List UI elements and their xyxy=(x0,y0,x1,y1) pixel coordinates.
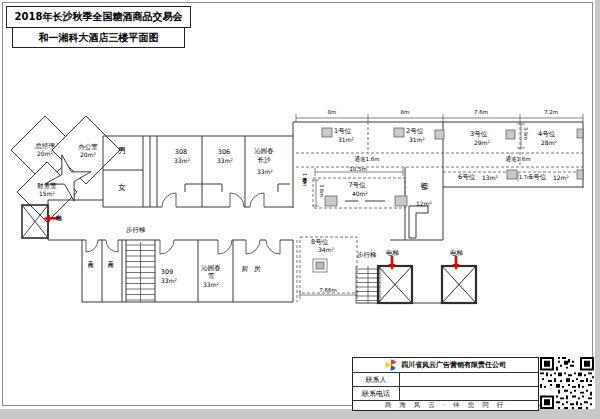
phone-row: 联系电话 xyxy=(353,386,538,400)
door-arcs xyxy=(86,193,280,254)
phone-label: 联系电话 xyxy=(353,387,400,400)
room-306-area: 33m² xyxy=(217,158,233,165)
booth-6-area: 13m² xyxy=(482,175,498,182)
room-office-area: 20m² xyxy=(80,152,96,159)
stairs-right xyxy=(356,266,380,303)
contact-label: 联系人 xyxy=(353,373,400,386)
dim-booth7-depth: 3.8m xyxy=(318,184,324,197)
dim-booth3-width: 7.6m xyxy=(474,109,488,115)
page: 2018年长沙秋季全国糖酒商品交易会 和一湘科大酒店三楼平面图 xyxy=(0,0,600,419)
stairs-left-label: 步行梯 xyxy=(126,227,146,234)
booth-5-area: 12m² xyxy=(553,175,569,182)
booth-7-area: 40m² xyxy=(352,191,368,198)
booth-1-area: 31m² xyxy=(338,137,354,144)
room-qyc-xue-area: 33m² xyxy=(203,282,219,289)
dim-booth8-width: 7.66m xyxy=(319,287,337,293)
dim-row1-depth: 3.9m xyxy=(522,127,528,140)
dim-booth4-width: 7.2m xyxy=(544,109,558,115)
phone-value xyxy=(400,387,538,400)
stairs-right-label: 步行梯 xyxy=(357,252,377,259)
company-row: 四川省风云广告营销有限责任公司 xyxy=(353,358,538,372)
room-309-label: 309 xyxy=(161,269,173,276)
contact-value xyxy=(400,373,538,386)
booth-2-area: 31m² xyxy=(409,137,425,144)
booth-7-label: 7号位 xyxy=(348,182,365,189)
elevator-bottom-1-label: 电梯 xyxy=(386,250,399,257)
booth-2-label: 2号位 xyxy=(406,128,423,135)
room-kitchen-label: 厨 房 xyxy=(241,266,262,273)
booth-4-area: 28m² xyxy=(541,140,557,147)
elevator-left-label: 电梯 xyxy=(55,210,62,211)
room-308-area: 33m² xyxy=(174,158,190,165)
room-qyc-changsha-label-1: 沁园春 xyxy=(254,148,274,155)
booth-6-label: 6号位 xyxy=(458,174,475,181)
company-logo xyxy=(385,359,397,371)
room-finance-area: 15m² xyxy=(39,191,55,198)
room-309-area: 33m² xyxy=(161,278,177,285)
walls xyxy=(48,122,583,303)
booth-dashed-lines xyxy=(296,122,583,302)
booth-1-label: 1号位 xyxy=(334,128,351,135)
room-308-label: 308 xyxy=(175,149,187,156)
bar-label: 吧台 xyxy=(419,177,427,178)
room-qyc-changsha-label-2: 长沙 xyxy=(258,157,271,164)
contact-row: 联系人 xyxy=(353,372,538,386)
workroom-1-label: 工作间 xyxy=(88,257,94,259)
elevator-bottom-2-label: 电梯 xyxy=(450,250,463,257)
booth-4-label: 4号位 xyxy=(538,131,555,138)
dim-booth2-width: 8m xyxy=(401,109,410,115)
room-qyc-xue-label-2: 雪 xyxy=(208,273,215,280)
room-gm-area: 20m² xyxy=(37,151,53,158)
elevator-shafts-bottom xyxy=(378,266,476,303)
footer-table: 四川省风云广告营销有限责任公司 联系人 联系电话 商 海 风 云 · 伴 您 同… xyxy=(352,357,539,411)
workroom-2-label: 工作间 xyxy=(108,257,114,259)
room-male-label: 男 xyxy=(118,147,126,156)
aisle-label-vertical: 通道1.6m xyxy=(301,173,307,186)
room-306-label: 306 xyxy=(218,149,230,156)
booth-8-area: 34m² xyxy=(318,247,334,254)
booth-3-label: 3号位 xyxy=(470,131,487,138)
booth-5-label: 5号位 xyxy=(529,174,546,181)
dim-booth1-width: 8m xyxy=(328,109,337,115)
room-qyc-changsha-area: 33m² xyxy=(257,169,273,176)
stairs-left xyxy=(126,242,155,302)
dim-booth7-width: 10.5m xyxy=(349,166,367,172)
room-female-label: 女 xyxy=(118,184,126,193)
slogan-row: 商 海 风 云 · 伴 您 同 行 xyxy=(353,400,538,410)
office-diamonds xyxy=(11,116,120,222)
company-name: 四川省风云广告营销有限责任公司 xyxy=(401,360,506,370)
pillars xyxy=(313,128,583,272)
bar-area: 12m² xyxy=(416,201,432,208)
aisle-label-left: 通道1.6m xyxy=(354,156,379,162)
qr-code xyxy=(540,357,594,409)
aisle-label-right: 通道1.6m xyxy=(505,156,530,162)
booth-3-area: 29m² xyxy=(474,140,490,147)
